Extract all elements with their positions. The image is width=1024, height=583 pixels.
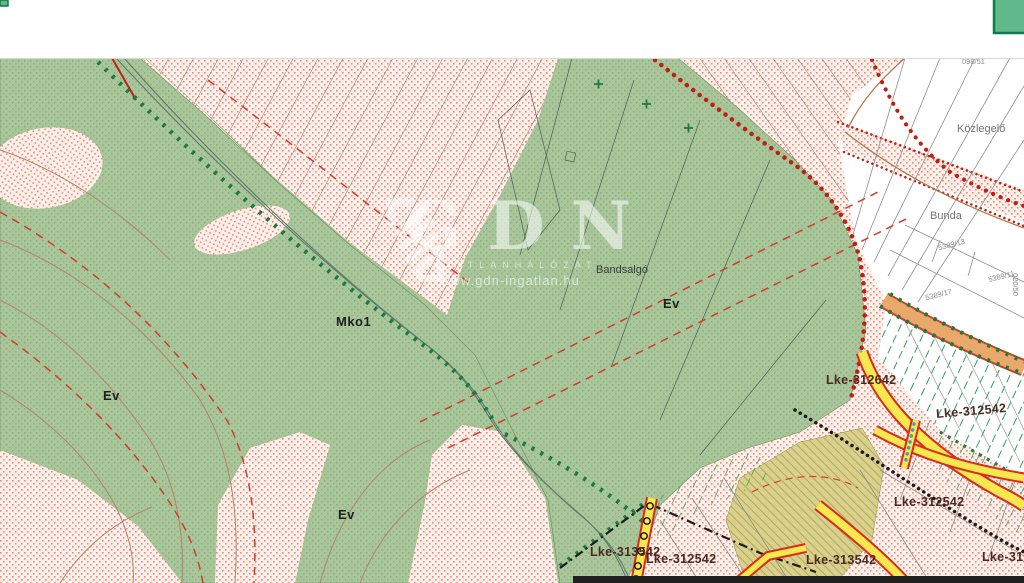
map-fragment-top-right [994, 0, 1024, 33]
bottom-edge-road [573, 576, 1024, 583]
top-bar [0, 0, 1024, 58]
map-canvas[interactable]: Mko1 Ev Ev Ev Bandsalgó Közlegelő Bunda … [0, 0, 1024, 583]
zoning-map[interactable] [0, 0, 1024, 583]
map-fragment-top-left [0, 0, 8, 6]
map-viewer-page: { "map": { "watermark": { "title": "GDN"… [0, 0, 1024, 583]
